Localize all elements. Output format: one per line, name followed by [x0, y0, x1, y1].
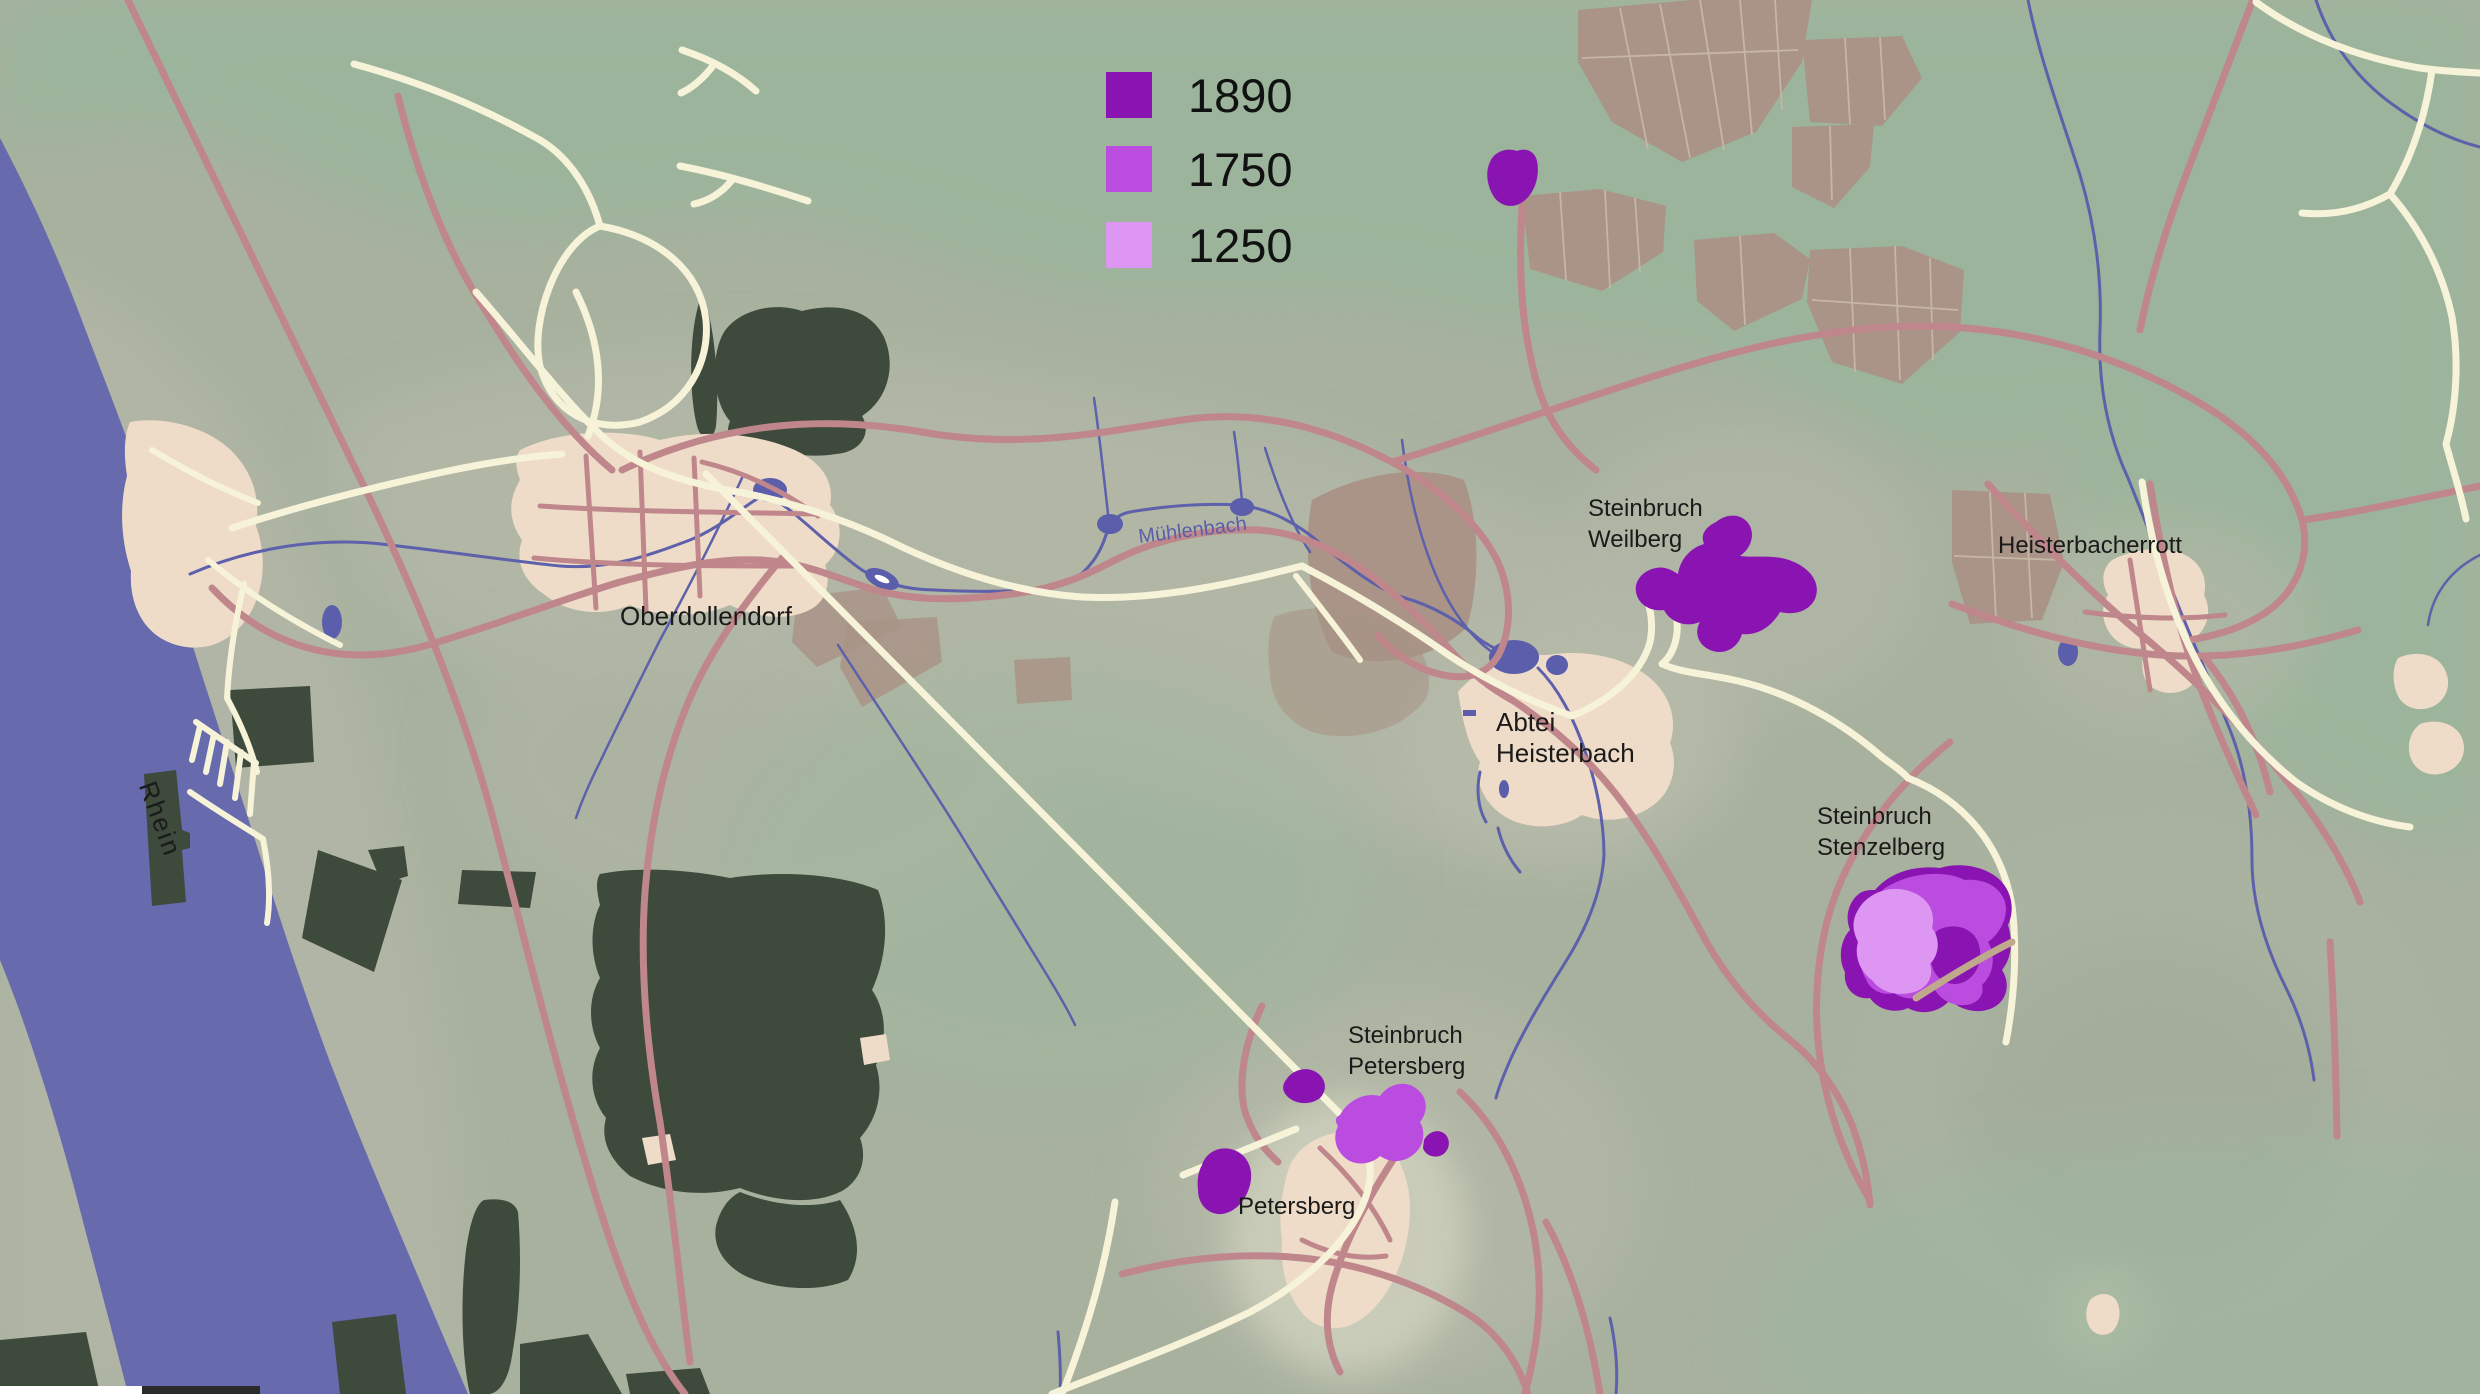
- label-stenzelberg-line2: Stenzelberg: [1817, 834, 1945, 861]
- village-oberdollendorf: [511, 433, 839, 617]
- label-weilberg-line2: Weilberg: [1588, 526, 1682, 553]
- legend-swatch-1750: [1106, 146, 1152, 192]
- pond: [1097, 514, 1123, 534]
- label-petersberg-quarry-line2: Petersberg: [1348, 1053, 1465, 1080]
- hamlet: [2086, 1294, 2119, 1335]
- label-abtei-line2: Heisterbach: [1496, 738, 1635, 768]
- scale-bar: [0, 1386, 260, 1394]
- legend: 1890 1750 1250: [1106, 69, 1293, 272]
- legend-swatch-1890: [1106, 72, 1152, 118]
- label-stenzelberg-line1: Steinbruch: [1817, 803, 1932, 830]
- pond: [1546, 655, 1568, 675]
- forest-clearing: [860, 1034, 890, 1065]
- map-viewport: Oberdollendorf Mühlenbach Abtei Heisterb…: [0, 0, 2480, 1394]
- legend-swatch-1250: [1106, 222, 1152, 268]
- legend-label-1250: 1250: [1188, 219, 1293, 272]
- label-weilberg-line1: Steinbruch: [1588, 495, 1703, 522]
- map-canvas: Oberdollendorf Mühlenbach Abtei Heisterb…: [0, 0, 2480, 1394]
- legend-label-1890: 1890: [1188, 69, 1293, 122]
- label-oberdollendorf: Oberdollendorf: [620, 601, 793, 631]
- forest-patch: [591, 870, 885, 1200]
- pond: [1499, 780, 1509, 798]
- forest-patch: [0, 1332, 100, 1394]
- legend-label-1750: 1750: [1188, 143, 1293, 196]
- field-patch: [1014, 657, 1072, 704]
- water-mark: [1463, 710, 1476, 716]
- pond: [322, 605, 342, 639]
- forest-patch: [458, 870, 536, 908]
- scale-bar-light: [0, 1386, 142, 1394]
- label-petersberg: Petersberg: [1238, 1193, 1355, 1220]
- label-heisterbacherrott: Heisterbacherrott: [1998, 532, 2182, 559]
- forest-patch: [332, 1314, 406, 1394]
- label-petersberg-quarry-line1: Steinbruch: [1348, 1022, 1463, 1049]
- label-abtei-line1: Abtei: [1496, 707, 1555, 737]
- scale-bar-dark: [142, 1386, 260, 1394]
